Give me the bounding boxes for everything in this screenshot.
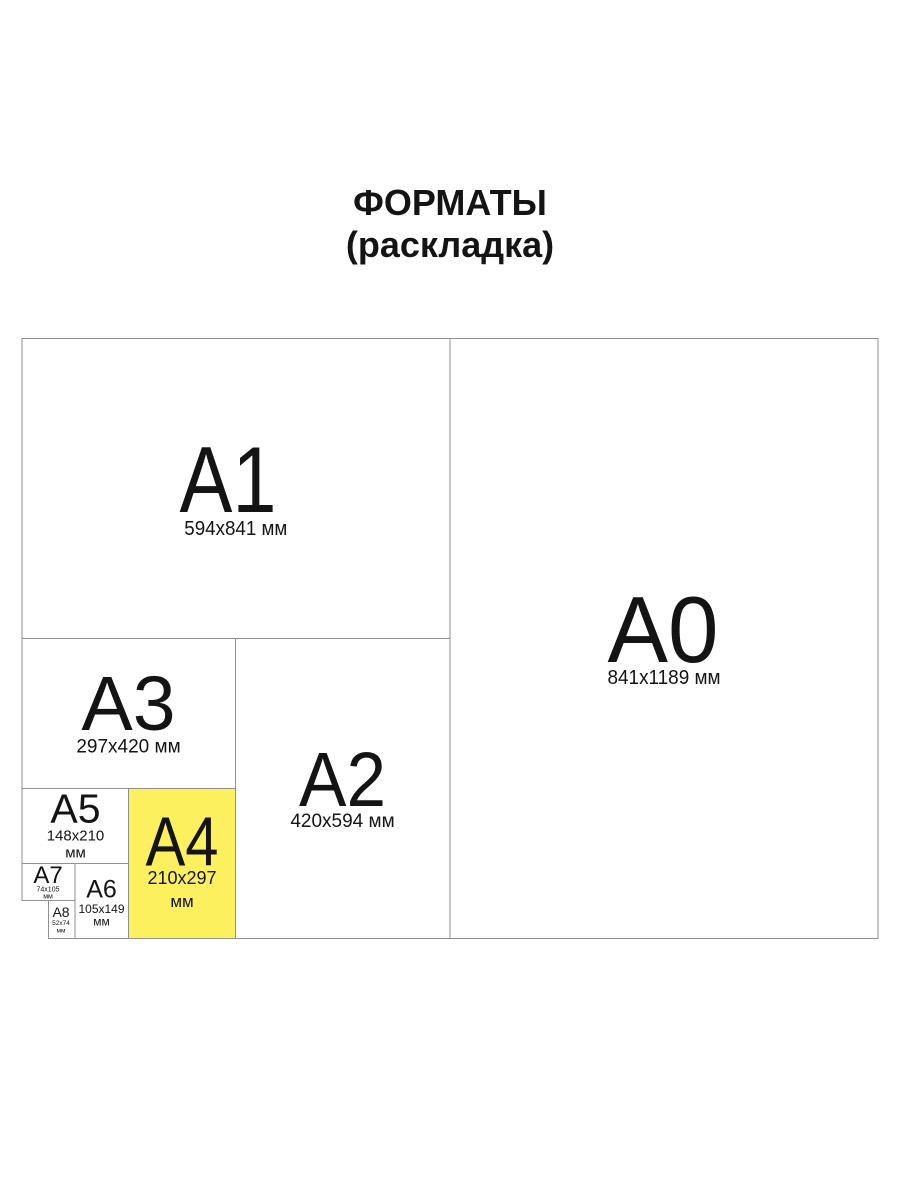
svg-text:A8: A8 bbox=[52, 904, 69, 920]
svg-text:мм: мм bbox=[43, 894, 53, 901]
svg-text:A5: A5 bbox=[50, 786, 100, 832]
svg-text:мм: мм bbox=[170, 892, 193, 911]
svg-text:148x210: 148x210 bbox=[47, 828, 105, 845]
svg-text:мм: мм bbox=[57, 928, 66, 935]
svg-text:420x594 мм: 420x594 мм bbox=[290, 811, 394, 832]
svg-text:A3: A3 bbox=[81, 661, 175, 747]
svg-text:210x297: 210x297 bbox=[147, 868, 216, 888]
svg-text:мм: мм bbox=[65, 845, 86, 862]
svg-text:841x1189 мм: 841x1189 мм bbox=[608, 667, 721, 689]
svg-text:297x420 мм: 297x420 мм bbox=[76, 737, 180, 758]
svg-text:A7: A7 bbox=[33, 862, 62, 889]
svg-text:74x105: 74x105 bbox=[37, 887, 60, 894]
svg-text:ФОРМАТЫ: ФОРМАТЫ bbox=[353, 182, 547, 223]
svg-text:594x841 мм: 594x841 мм bbox=[184, 518, 287, 540]
svg-text:мм: мм bbox=[93, 915, 110, 929]
svg-text:A6: A6 bbox=[86, 876, 117, 904]
svg-text:A1: A1 bbox=[180, 427, 277, 532]
svg-text:52x74: 52x74 bbox=[52, 920, 70, 927]
svg-text:(раскладка): (раскладка) bbox=[346, 224, 554, 265]
